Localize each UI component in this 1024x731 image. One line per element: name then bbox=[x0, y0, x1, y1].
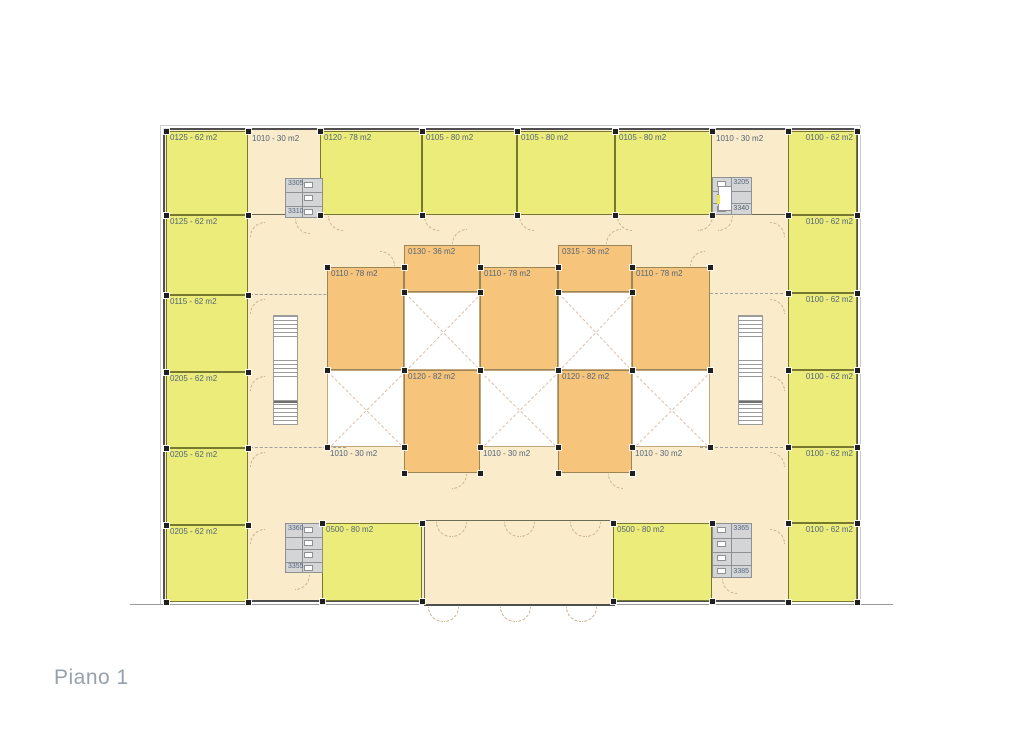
room-label: 0500 - 80 m2 bbox=[326, 525, 373, 535]
room-label: 3365 bbox=[733, 525, 749, 533]
column-marker bbox=[855, 521, 860, 526]
column-marker bbox=[318, 213, 323, 218]
column-marker bbox=[478, 265, 483, 270]
grid-dash-line bbox=[700, 447, 788, 448]
room-label: 0125 - 62 m2 bbox=[170, 133, 217, 143]
column-marker bbox=[164, 523, 169, 528]
room-0120: 0120 - 82 m2 bbox=[558, 370, 632, 473]
room-label: 0100 - 62 m2 bbox=[806, 449, 853, 459]
toilet-fixture bbox=[304, 195, 313, 201]
room-label: 0115 - 62 m2 bbox=[170, 297, 217, 307]
column-marker bbox=[855, 213, 860, 218]
column-marker bbox=[855, 129, 860, 134]
stair-break-line bbox=[274, 401, 297, 403]
toilet-fixture bbox=[304, 552, 313, 558]
room-label: 0120 - 82 m2 bbox=[408, 372, 455, 382]
room-label: 3305 bbox=[288, 180, 304, 188]
column-marker bbox=[246, 600, 251, 605]
column-marker bbox=[402, 368, 407, 373]
room-label: 0110 - 78 m2 bbox=[484, 269, 531, 279]
room-0205: 0205 - 62 m2 bbox=[166, 525, 248, 602]
room-label: 1010 - 30 m2 bbox=[716, 134, 763, 144]
column-marker bbox=[786, 368, 791, 373]
column-marker bbox=[515, 129, 520, 134]
column-marker bbox=[420, 129, 425, 134]
column-marker bbox=[855, 445, 860, 450]
column-marker bbox=[786, 600, 791, 605]
door-swing-arc bbox=[582, 607, 597, 622]
room-label: 0110 - 78 m2 bbox=[331, 269, 378, 279]
room-0105: 0105 - 80 m2 bbox=[422, 131, 517, 215]
toilet-fixture bbox=[304, 209, 313, 215]
room-0205: 0205 - 62 m2 bbox=[166, 372, 248, 448]
column-marker bbox=[630, 471, 635, 476]
room-label: 0315 - 36 m2 bbox=[562, 247, 609, 257]
room-label: 0500 - 80 m2 bbox=[617, 525, 664, 535]
column-marker bbox=[320, 599, 325, 604]
column-marker bbox=[613, 213, 618, 218]
column-marker bbox=[164, 600, 169, 605]
room-0120: 0120 - 78 m2 bbox=[320, 131, 422, 215]
service-block: 33053310 bbox=[285, 178, 323, 218]
grid-dash-line bbox=[700, 293, 788, 294]
room-0130: 0130 - 36 m2 bbox=[404, 245, 480, 292]
column-marker bbox=[402, 290, 407, 295]
room-0110: 0110 - 78 m2 bbox=[480, 267, 558, 370]
column-marker bbox=[786, 129, 791, 134]
room-label: 3310 bbox=[288, 208, 304, 216]
room-0125: 0125 - 62 m2 bbox=[166, 215, 248, 295]
room-0120: 0120 - 82 m2 bbox=[404, 370, 480, 473]
void-opening bbox=[558, 292, 632, 370]
column-marker bbox=[318, 129, 323, 134]
door-swing-arc bbox=[444, 607, 459, 622]
column-marker bbox=[710, 521, 715, 526]
column-marker bbox=[164, 213, 169, 218]
column-marker bbox=[402, 265, 407, 270]
column-marker bbox=[246, 446, 251, 451]
room-label: 0105 - 80 m2 bbox=[521, 133, 568, 143]
room-0315: 0315 - 36 m2 bbox=[558, 245, 632, 292]
room-0500: 0500 - 80 m2 bbox=[322, 523, 422, 601]
column-marker bbox=[630, 265, 635, 270]
column-marker bbox=[710, 599, 715, 604]
elevator bbox=[718, 186, 732, 211]
grid-dash-line bbox=[250, 447, 346, 448]
column-marker bbox=[786, 213, 791, 218]
floor-title: Piano 1 bbox=[54, 666, 129, 690]
stall-divider bbox=[713, 565, 751, 566]
column-marker bbox=[164, 446, 169, 451]
toilet-fixture bbox=[304, 182, 313, 188]
room-label: 3385 bbox=[733, 568, 749, 576]
stair-break-line bbox=[739, 401, 762, 403]
void-opening bbox=[404, 292, 480, 370]
column-marker bbox=[478, 471, 483, 476]
room-0100: 0100 - 62 m2 bbox=[788, 447, 857, 523]
column-marker bbox=[556, 445, 561, 450]
column-marker bbox=[855, 291, 860, 296]
column-marker bbox=[786, 521, 791, 526]
room-label: 0130 - 36 m2 bbox=[408, 247, 455, 257]
stall-divider bbox=[286, 206, 322, 207]
column-marker bbox=[164, 370, 169, 375]
void-opening bbox=[480, 370, 558, 447]
column-marker bbox=[708, 445, 713, 450]
stair-landing bbox=[274, 339, 297, 357]
column-marker bbox=[246, 129, 251, 134]
floorplan-canvas: 0125 - 62 m20125 - 62 m20115 - 62 m20205… bbox=[0, 0, 1024, 731]
column-marker bbox=[478, 445, 483, 450]
stall-divider bbox=[286, 192, 322, 193]
room-label: 0120 - 78 m2 bbox=[324, 133, 371, 143]
column-marker bbox=[478, 290, 483, 295]
column-marker bbox=[613, 129, 618, 134]
toilet-fixture bbox=[304, 527, 313, 533]
room-label: 1010 - 30 m2 bbox=[483, 449, 530, 459]
toilet-fixture bbox=[717, 555, 726, 561]
column-marker bbox=[708, 265, 713, 270]
column-marker bbox=[164, 293, 169, 298]
staircase bbox=[738, 315, 763, 425]
toilet-fixture bbox=[304, 540, 313, 546]
room-label: 3205 bbox=[733, 179, 749, 187]
column-marker bbox=[630, 290, 635, 295]
room-label: 3360 bbox=[288, 525, 304, 533]
column-marker bbox=[786, 445, 791, 450]
stair-landing bbox=[274, 379, 297, 401]
column-marker bbox=[164, 129, 169, 134]
column-marker bbox=[855, 600, 860, 605]
room-label: 0205 - 62 m2 bbox=[170, 450, 217, 460]
column-marker bbox=[710, 129, 715, 134]
column-marker bbox=[246, 213, 251, 218]
column-marker bbox=[611, 521, 616, 526]
column-marker bbox=[325, 265, 330, 270]
room-label: 0205 - 62 m2 bbox=[170, 374, 217, 384]
column-marker bbox=[708, 368, 713, 373]
room-label: 0105 - 80 m2 bbox=[619, 133, 666, 143]
stall-divider bbox=[713, 538, 751, 539]
column-marker bbox=[246, 523, 251, 528]
service-block: 33653385 bbox=[712, 523, 752, 578]
service-block: 32053340 bbox=[712, 177, 752, 215]
column-marker bbox=[402, 471, 407, 476]
column-marker bbox=[246, 370, 251, 375]
column-marker bbox=[630, 445, 635, 450]
column-marker bbox=[420, 213, 425, 218]
room-0115: 0115 - 62 m2 bbox=[166, 295, 248, 372]
staircase bbox=[273, 315, 298, 425]
column-marker bbox=[611, 599, 616, 604]
room-label: 3340 bbox=[733, 205, 749, 213]
toilet-fixture bbox=[717, 568, 726, 574]
door-swing-arc bbox=[500, 607, 515, 622]
room-0500: 0500 - 80 m2 bbox=[613, 523, 712, 601]
column-marker bbox=[515, 213, 520, 218]
room-0100: 0100 - 62 m2 bbox=[788, 293, 857, 370]
door-swing-arc bbox=[516, 607, 531, 622]
void-opening bbox=[632, 370, 710, 447]
room-label: 0100 - 62 m2 bbox=[806, 133, 853, 143]
room-label: 0100 - 62 m2 bbox=[806, 295, 853, 305]
column-marker bbox=[710, 213, 715, 218]
room-0100: 0100 - 62 m2 bbox=[788, 215, 857, 293]
room-label: 1010 - 30 m2 bbox=[252, 134, 299, 144]
room-label: 0125 - 62 m2 bbox=[170, 217, 217, 227]
column-marker bbox=[325, 445, 330, 450]
room-0100: 0100 - 62 m2 bbox=[788, 131, 857, 215]
column-marker bbox=[556, 265, 561, 270]
toilet-fixture bbox=[717, 541, 726, 547]
service-block: 33603355 bbox=[285, 523, 323, 573]
stair-landing bbox=[739, 339, 762, 357]
room-0110: 0110 - 78 m2 bbox=[632, 267, 710, 370]
column-marker bbox=[320, 521, 325, 526]
room-0105: 0105 - 80 m2 bbox=[517, 131, 615, 215]
column-marker bbox=[556, 368, 561, 373]
stall-divider bbox=[713, 552, 751, 553]
column-marker bbox=[630, 368, 635, 373]
column-marker bbox=[556, 471, 561, 476]
room-0125: 0125 - 62 m2 bbox=[166, 131, 248, 215]
column-marker bbox=[246, 293, 251, 298]
room-label: 0120 - 82 m2 bbox=[562, 372, 609, 382]
stair-landing bbox=[739, 379, 762, 401]
room-0205: 0205 - 62 m2 bbox=[166, 448, 248, 525]
toilet-fixture bbox=[304, 565, 313, 571]
room-0100: 0100 - 62 m2 bbox=[788, 370, 857, 447]
toilet-fixture bbox=[717, 527, 726, 533]
column-marker bbox=[556, 290, 561, 295]
room-label: 0205 - 62 m2 bbox=[170, 527, 217, 537]
column-marker bbox=[325, 368, 330, 373]
room-label: 3355 bbox=[288, 563, 304, 571]
column-marker bbox=[420, 599, 425, 604]
door-swing-arc bbox=[566, 607, 581, 622]
stall-divider bbox=[286, 537, 322, 538]
room-label: 0100 - 62 m2 bbox=[806, 372, 853, 382]
room-0110: 0110 - 78 m2 bbox=[327, 267, 404, 370]
elevator-door-accent bbox=[717, 195, 720, 204]
column-marker bbox=[786, 291, 791, 296]
stall-divider bbox=[286, 549, 322, 550]
room-label: 0100 - 62 m2 bbox=[806, 217, 853, 227]
column-marker bbox=[402, 445, 407, 450]
room-0100: 0100 - 62 m2 bbox=[788, 523, 857, 602]
block-divider bbox=[731, 524, 732, 577]
room-label: 0100 - 62 m2 bbox=[806, 525, 853, 535]
void-opening bbox=[327, 370, 404, 447]
room-0105: 0105 - 80 m2 bbox=[615, 131, 712, 215]
room-label: 0105 - 80 m2 bbox=[426, 133, 473, 143]
room-label: 1010 - 30 m2 bbox=[330, 449, 377, 459]
column-marker bbox=[420, 521, 425, 526]
door-swing-arc bbox=[428, 607, 443, 622]
room-label: 1010 - 30 m2 bbox=[635, 449, 682, 459]
column-marker bbox=[855, 368, 860, 373]
room-label: 0110 - 78 m2 bbox=[636, 269, 683, 279]
column-marker bbox=[478, 368, 483, 373]
